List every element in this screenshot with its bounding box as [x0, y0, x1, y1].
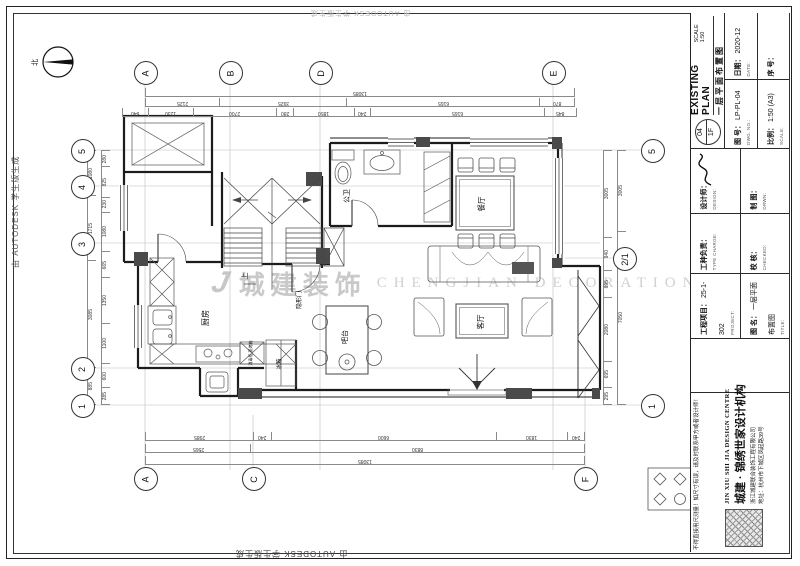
dimension-chain: 212539256165870	[145, 98, 575, 107]
dimension-value: 695	[606, 370, 611, 378]
dimension-value: 3005	[620, 185, 625, 196]
sheet-title-band: 04 1F EXISTING PLAN SCALE 1:50 一层平面布置图	[691, 13, 725, 148]
grid-bubble-label: E	[549, 70, 558, 76]
dimension-value: 240	[258, 434, 266, 439]
grid-bubble-label: 5	[648, 148, 657, 153]
dimension-segment: 1830	[497, 432, 568, 440]
grid-bubble-5: 5	[71, 139, 95, 163]
dimension-segment: 3005	[618, 150, 626, 232]
title-block-sheet-section: 04 1F EXISTING PLAN SCALE 1:50 一层平面布置图 图…	[691, 13, 789, 148]
company-name-cn: 城建 · 锦绣世家设计机构	[732, 384, 748, 504]
date-sub: DATE:	[746, 16, 751, 76]
dimension-chain: 13085	[145, 88, 575, 97]
date-value: 2020-12	[735, 28, 742, 54]
dwg-no-sub: DWG. NO.:	[746, 83, 751, 144]
dimension-chain: 280825230108066513501100600285	[101, 150, 110, 405]
dimension-segment: 845	[545, 108, 577, 116]
grid-bubble-E: E	[542, 61, 566, 85]
dimension-segment: 1100	[102, 324, 110, 364]
grid-bubble-2-1: 2/1	[613, 247, 637, 271]
type-charge-sub: TYPE CHARGE:	[712, 217, 717, 271]
title-block-empty-cell	[691, 338, 789, 392]
dimension-value: 7050	[620, 312, 625, 323]
grid-bubble-1: 1	[641, 394, 665, 418]
date-label: 日期：	[735, 55, 742, 76]
dimension-value: 13085	[358, 458, 372, 463]
dimension-value: 3005	[606, 188, 611, 199]
dimension-segment: 600	[102, 364, 110, 388]
grid-bubble-A: A	[134, 61, 158, 85]
grid-bubble-C: C	[242, 467, 266, 491]
grid-bubble-label: 4	[78, 184, 87, 189]
dimension-value: 1350	[104, 295, 109, 306]
dimension-value: 240	[358, 110, 366, 115]
dimension-segment: 640	[122, 108, 149, 116]
dimension-value: 1715	[90, 223, 95, 234]
dimension-segment: 2080	[604, 298, 612, 362]
company-block: JIN XIU SHI JIA DESIGN CENTRE 城建 · 锦绣世家设…	[724, 384, 765, 504]
dimension-segment: 1350	[102, 278, 110, 324]
drawing-name-sub: TITLE:	[780, 277, 785, 335]
dimension-value: 230	[104, 200, 109, 208]
grid-bubble-label: D	[317, 70, 326, 77]
dimension-chain: 30057050	[617, 150, 626, 405]
title-block-company-section: 不得直接用尺测量！如尺寸有误，请及时联系甲方或者设计师！ JIN XIU SHI…	[691, 392, 789, 552]
project-label: 工程项目：	[701, 300, 708, 335]
dimension-segment: 8830	[251, 444, 585, 452]
dimension-value: 13085	[353, 90, 367, 95]
dimension-segment: 3085	[88, 261, 96, 368]
dimension-chain: 13085	[145, 456, 585, 465]
dimension-segment: 2125	[145, 98, 220, 106]
grid-bubble-2: 2	[71, 357, 95, 381]
dimension-value: 280	[281, 110, 289, 115]
dimension-segment: 2565	[145, 444, 251, 452]
grid-bubble-label: 2/1	[620, 253, 629, 266]
dimension-segment: 280	[277, 108, 294, 116]
dimension-segment: 240	[254, 432, 271, 440]
dimension-value: 3085	[90, 309, 95, 320]
dimension-chain: 30059406952080695295	[603, 150, 612, 405]
designer-field: 设计师： DESIGN:	[691, 149, 740, 213]
dimension-value: 8830	[412, 446, 423, 451]
project-sub: PROJECT:	[730, 277, 735, 335]
grid-bubble-1: 1	[71, 394, 95, 418]
scale-label: 比例：	[768, 124, 775, 145]
grid-bubble-label: 3	[78, 241, 87, 246]
dwg-no-value: LP-PL-04	[735, 90, 742, 120]
checked-field: 校 核： CHECKED:	[740, 214, 790, 274]
dimension-value: 2700	[229, 110, 240, 115]
dimension-segment: 695	[604, 271, 612, 298]
dimension-segment: 2985	[145, 432, 254, 440]
serial-label: 序 号：	[768, 54, 775, 77]
dimension-value: 2565	[193, 446, 204, 451]
scale-sub: SCALE:	[779, 83, 784, 144]
grid-bubble-5: 5	[641, 139, 665, 163]
dimension-chain: 6401230270028018502406165845	[122, 108, 577, 117]
dimension-value: 1850	[318, 110, 329, 115]
sheet-number-circle: 04 1F	[695, 119, 721, 145]
grid-bubble-A: A	[134, 467, 158, 491]
dimension-segment: 6600	[272, 432, 497, 440]
dimension-value: 280	[104, 155, 109, 163]
title-block-project-section: 工程项目：25-1-302 PROJECT: 图 名：一层平面布置图 TITLE…	[691, 273, 789, 338]
dimension-segment: 870	[540, 98, 575, 106]
dimension-segment: 6165	[371, 108, 546, 116]
grid-bubble-4: 4	[71, 175, 95, 199]
checked-sub: CHECKED:	[762, 217, 767, 271]
title-block: 不得直接用尺测量！如尺寸有误，请及时联系甲方或者设计师！ JIN XIU SHI…	[690, 13, 789, 552]
grid-bubble-label: 5	[78, 148, 87, 153]
sheet-scale-note: SCALE 1:50	[694, 16, 706, 42]
title-block-rotated: 不得直接用尺测量！如尺寸有误，请及时联系甲方或者设计师！ JIN XIU SHI…	[691, 13, 789, 552]
dimension-segment: 6165	[347, 98, 540, 106]
grid-bubble-label: A	[141, 70, 150, 76]
dimension-value: 2080	[606, 324, 611, 335]
grid-bubble-label: B	[226, 70, 235, 76]
dimension-segment: 295	[604, 388, 612, 405]
dimension-segment: 13085	[145, 88, 575, 96]
grid-bubble-label: F	[582, 476, 591, 482]
drawing-sheet: 由 AUTODESK 学生版生成 由 AUTODESK 学生版生成 由 AUTO…	[0, 0, 800, 566]
draft-label: 制 图：	[751, 187, 758, 210]
dimension-segment: 2700	[194, 108, 277, 116]
dimension-chain: 298524066001830240	[145, 432, 585, 441]
drawing-name-label: 图 名：	[751, 312, 758, 335]
dimension-value: 285	[104, 392, 109, 400]
dimension-segment: 825	[102, 167, 110, 197]
dimension-value: 1230	[165, 110, 176, 115]
dimension-segment: 240	[568, 432, 585, 440]
dimension-value: 3925	[278, 100, 289, 105]
draft-sub: DRWN:	[762, 152, 767, 210]
grid-bubble-D: D	[309, 61, 333, 85]
designer-signature	[697, 153, 715, 187]
grid-bubble-label: 2	[78, 366, 87, 371]
company-firm: 浙江城建联合装饰工程有限公司	[749, 384, 757, 504]
dimension-value: 640	[131, 110, 139, 115]
dimension-value: 665	[104, 261, 109, 269]
dimension-chain: 25658830	[145, 444, 585, 453]
dimension-segment: 1230	[149, 108, 194, 116]
dimension-segment: 285	[102, 388, 110, 405]
measure-warning: 不得直接用尺测量！如尺寸有误，请及时联系甲方或者设计师！	[692, 320, 702, 550]
scale-value: 1:50 (A3)	[768, 93, 775, 122]
grid-bubble-3: 3	[71, 232, 95, 256]
sheet-number-bottom: 1F	[707, 120, 718, 144]
checked-label: 校 核：	[751, 247, 758, 270]
dimension-segment: 940	[604, 238, 612, 271]
dimension-segment: 1850	[294, 108, 355, 116]
dimension-segment: 230	[102, 198, 110, 213]
dimension-segment: 3005	[604, 150, 612, 238]
dimension-value: 6165	[438, 100, 449, 105]
dimension-value: 1100	[104, 338, 109, 349]
date-field: 日期：2020-12 DATE:	[725, 13, 757, 80]
company-name-en: JIN XIU SHI JIA DESIGN CENTRE	[724, 384, 731, 504]
sheet-title: EXISTING PLAN SCALE 1:50 一层平面布置图	[690, 16, 725, 115]
annotation-overlay: ABDE5432152/11ACF13085212539256165870640…	[0, 0, 800, 566]
type-charge-field: 工种负责： TYPE CHARGE:	[691, 214, 740, 274]
dimension-value: 2125	[177, 100, 188, 105]
grid-bubble-F: F	[574, 467, 598, 491]
dimension-value: 695	[606, 280, 611, 288]
company-address: 地址：杭州市下城区凤起路39号	[757, 384, 765, 504]
serial-field: 序 号：	[757, 13, 789, 80]
sheet-info-grid: 图 号：LP-PL-04 DWG. NO.: 日期：2020-12 DATE: …	[725, 13, 789, 148]
dimension-value: 825	[104, 178, 109, 186]
dimension-value: 870	[553, 100, 561, 105]
dimension-value: 295	[606, 392, 611, 400]
dimension-value: 6165	[452, 110, 463, 115]
grid-bubble-label: 1	[78, 403, 87, 408]
dimension-value: 845	[556, 110, 564, 115]
sheet-title-cn: 一层平面布置图	[714, 16, 725, 115]
title-block-charge-section: 工种负责： TYPE CHARGE: 校 核： CHECKED:	[691, 213, 789, 274]
drawing-name-field: 图 名：一层平面布置图 TITLE:	[740, 274, 790, 338]
dimension-value: 940	[606, 250, 611, 258]
dimension-segment: 1080	[102, 213, 110, 252]
grid-bubble-label: A	[141, 476, 150, 482]
type-charge-label: 工种负责：	[701, 235, 708, 270]
dimension-value: 6600	[378, 434, 389, 439]
scale-field: 比例：1:50 (A3) SCALE:	[757, 80, 789, 147]
dimension-segment: 13085	[145, 456, 585, 464]
dimension-value: 240	[572, 434, 580, 439]
grid-bubble-label: 1	[648, 403, 657, 408]
dimension-value: 2985	[194, 434, 205, 439]
company-seal-icon	[725, 509, 763, 547]
dimension-value: 885	[90, 382, 95, 390]
sheet-number-top: 04	[696, 120, 708, 144]
dimension-value: 600	[104, 372, 109, 380]
dimension-segment: 280	[102, 150, 110, 167]
grid-bubble-B: B	[219, 61, 243, 85]
dimension-segment: 695	[604, 362, 612, 389]
dimension-segment: 240	[355, 108, 371, 116]
dimension-segment: 665	[102, 252, 110, 278]
dimension-value: 1830	[526, 434, 537, 439]
dimension-segment: 3925	[220, 98, 347, 106]
draft-field: 制 图： DRWN:	[740, 149, 790, 213]
sheet-title-en: EXISTING PLAN	[690, 42, 712, 115]
title-block-designer-section: 设计师： DESIGN: 制 图： DRWN:	[691, 148, 789, 213]
dimension-value: 1080	[104, 226, 109, 237]
grid-bubble-label: C	[250, 476, 259, 483]
dwg-no-label: 图 号：	[735, 122, 742, 145]
dwg-no-field: 图 号：LP-PL-04 DWG. NO.:	[725, 80, 757, 147]
